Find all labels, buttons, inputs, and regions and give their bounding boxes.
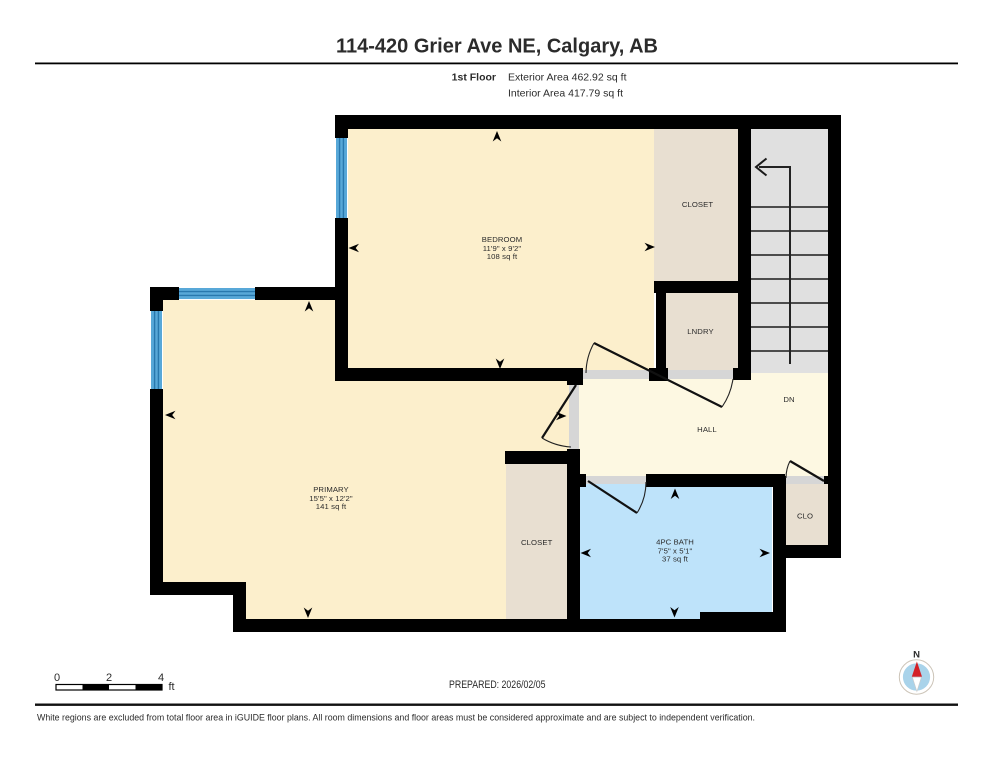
- svg-text:1st Floor: 1st Floor: [452, 72, 496, 84]
- svg-text:37 sq ft: 37 sq ft: [662, 555, 689, 564]
- svg-text:DN: DN: [783, 395, 794, 404]
- svg-text:0: 0: [54, 672, 60, 684]
- svg-text:Exterior Area 462.92 sq ft: Exterior Area 462.92 sq ft: [508, 72, 627, 84]
- svg-text:PREPARED: 2026/02/05: PREPARED: 2026/02/05: [449, 679, 546, 691]
- svg-text:4: 4: [158, 672, 164, 684]
- svg-text:4PC BATH: 4PC BATH: [656, 538, 694, 547]
- svg-text:ft: ft: [169, 681, 175, 693]
- svg-text:Interior Area 417.79 sq ft: Interior Area 417.79 sq ft: [508, 88, 623, 100]
- svg-text:108 sq ft: 108 sq ft: [487, 252, 518, 261]
- svg-text:N: N: [913, 650, 920, 661]
- svg-text:2: 2: [106, 672, 112, 684]
- svg-text:LNDRY: LNDRY: [687, 327, 713, 336]
- svg-text:BEDROOM: BEDROOM: [482, 235, 522, 244]
- svg-text:CLOSET: CLOSET: [521, 538, 553, 547]
- svg-text:HALL: HALL: [697, 425, 717, 434]
- svg-text:PRIMARY: PRIMARY: [313, 485, 349, 494]
- svg-text:CLOSET: CLOSET: [682, 200, 714, 209]
- svg-text:141 sq ft: 141 sq ft: [316, 502, 347, 511]
- svg-text:114-420 Grier Ave NE, Calgary,: 114-420 Grier Ave NE, Calgary, AB: [336, 36, 658, 58]
- svg-text:White regions are excluded fro: White regions are excluded from total fl…: [37, 713, 755, 723]
- svg-text:CLO: CLO: [797, 512, 813, 521]
